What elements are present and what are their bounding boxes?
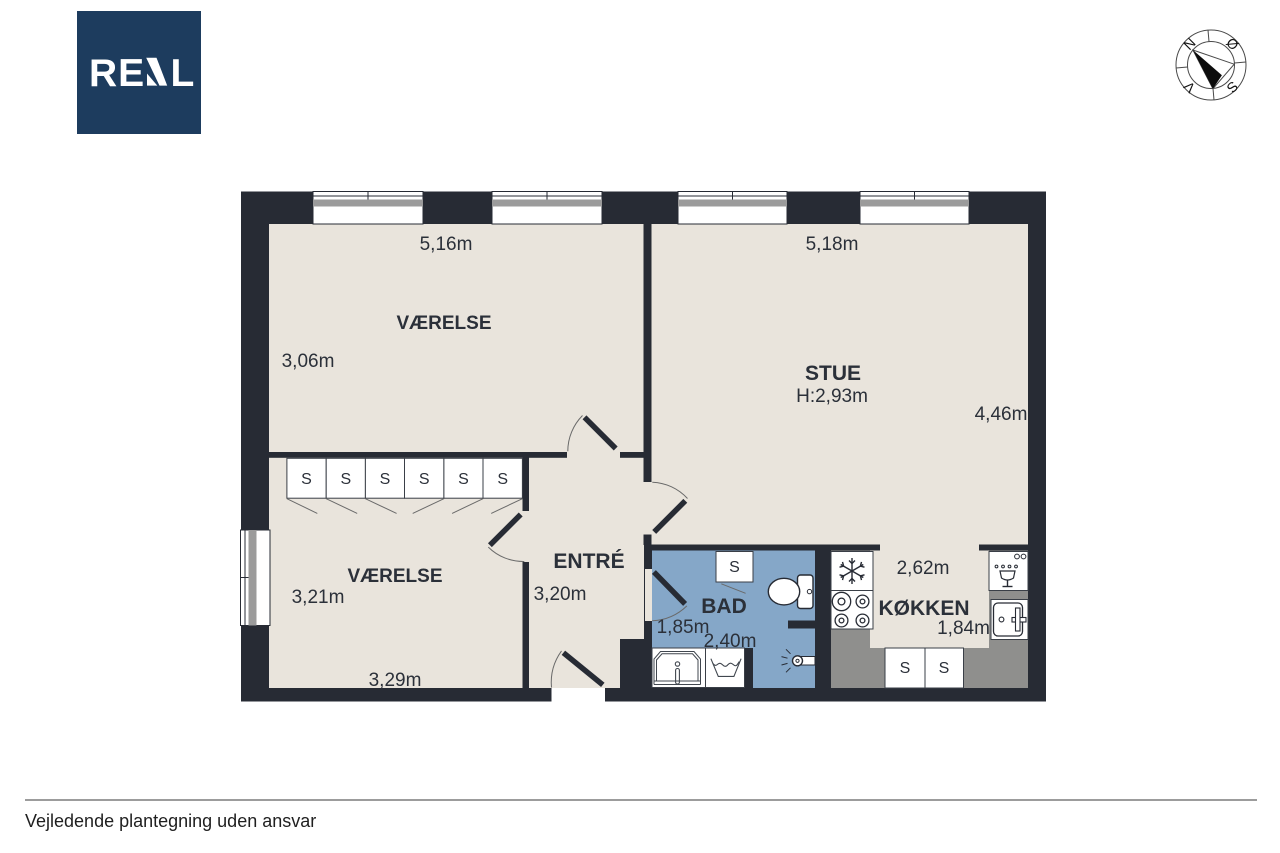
svg-text:2,40m: 2,40m xyxy=(704,631,757,652)
svg-text:3,06m: 3,06m xyxy=(282,351,335,372)
svg-text:S: S xyxy=(301,471,312,488)
svg-text:S: S xyxy=(729,559,740,576)
svg-text:L: L xyxy=(171,52,195,95)
svg-text:Vejledende plantegning uden an: Vejledende plantegning uden ansvar xyxy=(25,811,316,831)
svg-text:1,85m: 1,85m xyxy=(657,617,710,638)
svg-text:S: S xyxy=(497,471,508,488)
svg-text:S: S xyxy=(458,471,469,488)
svg-text:3,21m: 3,21m xyxy=(292,587,345,608)
svg-text:ENTRÉ: ENTRÉ xyxy=(553,550,624,573)
svg-text:S: S xyxy=(419,471,430,488)
svg-text:BAD: BAD xyxy=(701,595,747,618)
svg-text:S: S xyxy=(900,660,911,677)
svg-text:S: S xyxy=(939,660,950,677)
svg-text:KØKKEN: KØKKEN xyxy=(878,597,969,620)
svg-text:5,18m: 5,18m xyxy=(806,234,859,255)
svg-text:VÆRELSE: VÆRELSE xyxy=(396,313,491,334)
svg-text:1,84m: 1,84m xyxy=(937,618,990,639)
svg-text:S: S xyxy=(380,471,391,488)
svg-text:5,16m: 5,16m xyxy=(420,234,473,255)
svg-text:3,29m: 3,29m xyxy=(369,670,422,691)
svg-text:RE: RE xyxy=(89,52,145,95)
svg-text:VÆRELSE: VÆRELSE xyxy=(347,566,442,587)
svg-text:S: S xyxy=(340,471,351,488)
svg-text:2,62m: 2,62m xyxy=(897,558,950,579)
svg-text:3,20m: 3,20m xyxy=(534,584,587,605)
svg-text:STUE: STUE xyxy=(805,362,861,385)
svg-text:H:2,93m: H:2,93m xyxy=(796,386,868,407)
svg-text:4,46m: 4,46m xyxy=(975,404,1028,425)
